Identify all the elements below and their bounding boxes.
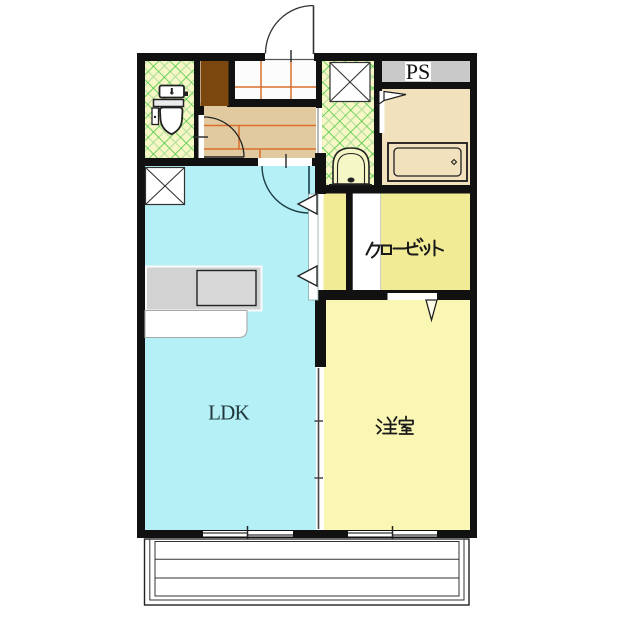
svg-text:LDK: LDK [208, 401, 249, 425]
svg-text:PS: PS [406, 59, 430, 84]
